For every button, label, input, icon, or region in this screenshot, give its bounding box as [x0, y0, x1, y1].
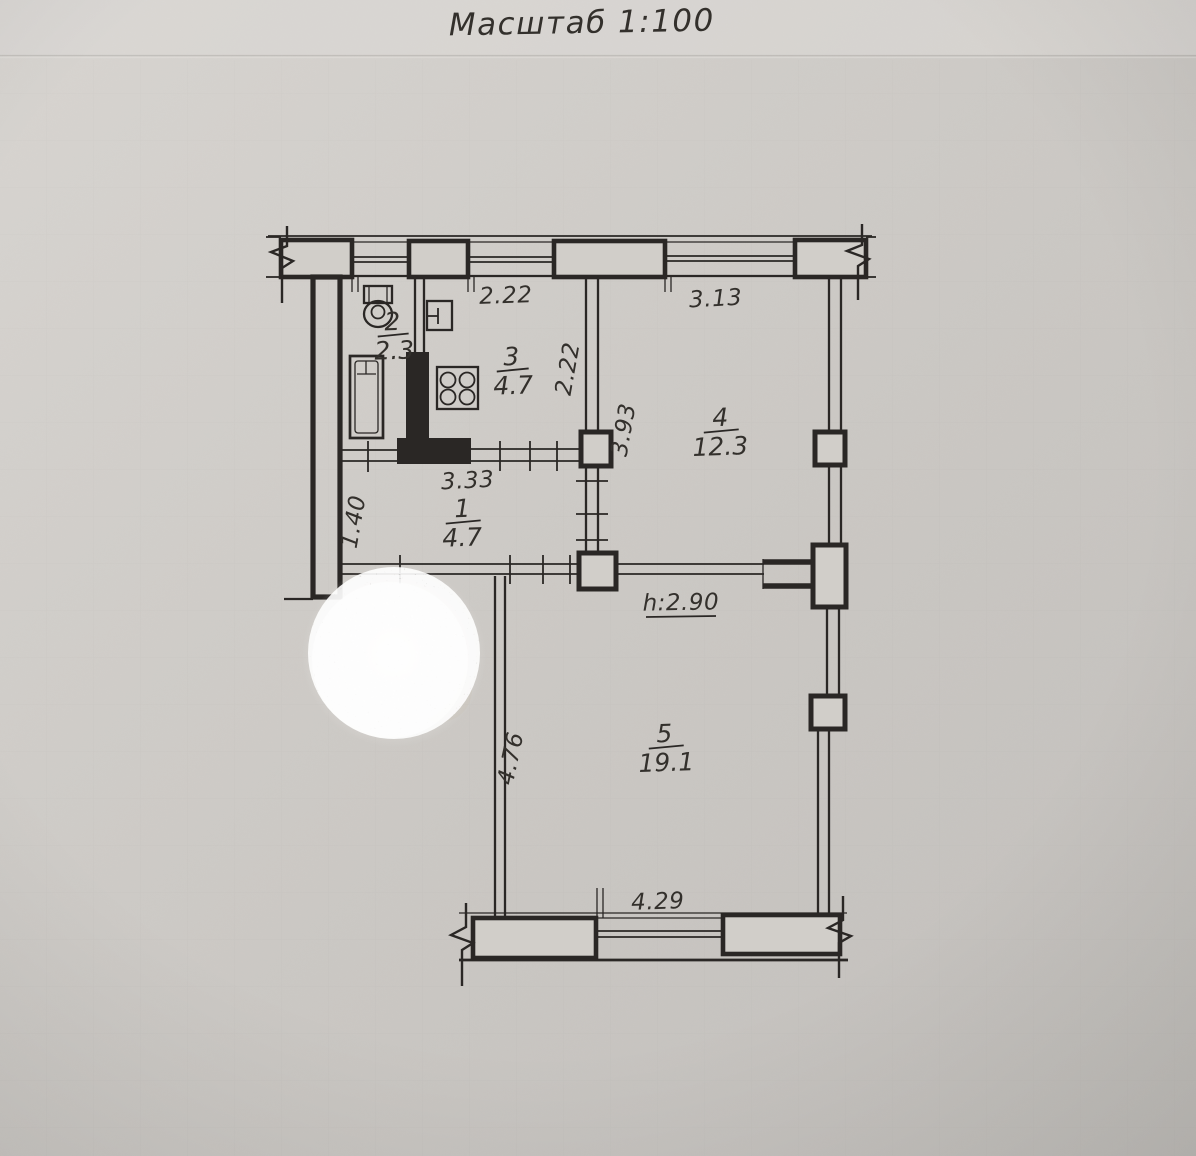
photo-vignette — [0, 0, 1196, 1156]
floor-plan-drawing: Масштаб 1:100 — [0, 0, 1196, 1156]
floor-plan-scan: Масштаб 1:100 — [0, 0, 1196, 1156]
